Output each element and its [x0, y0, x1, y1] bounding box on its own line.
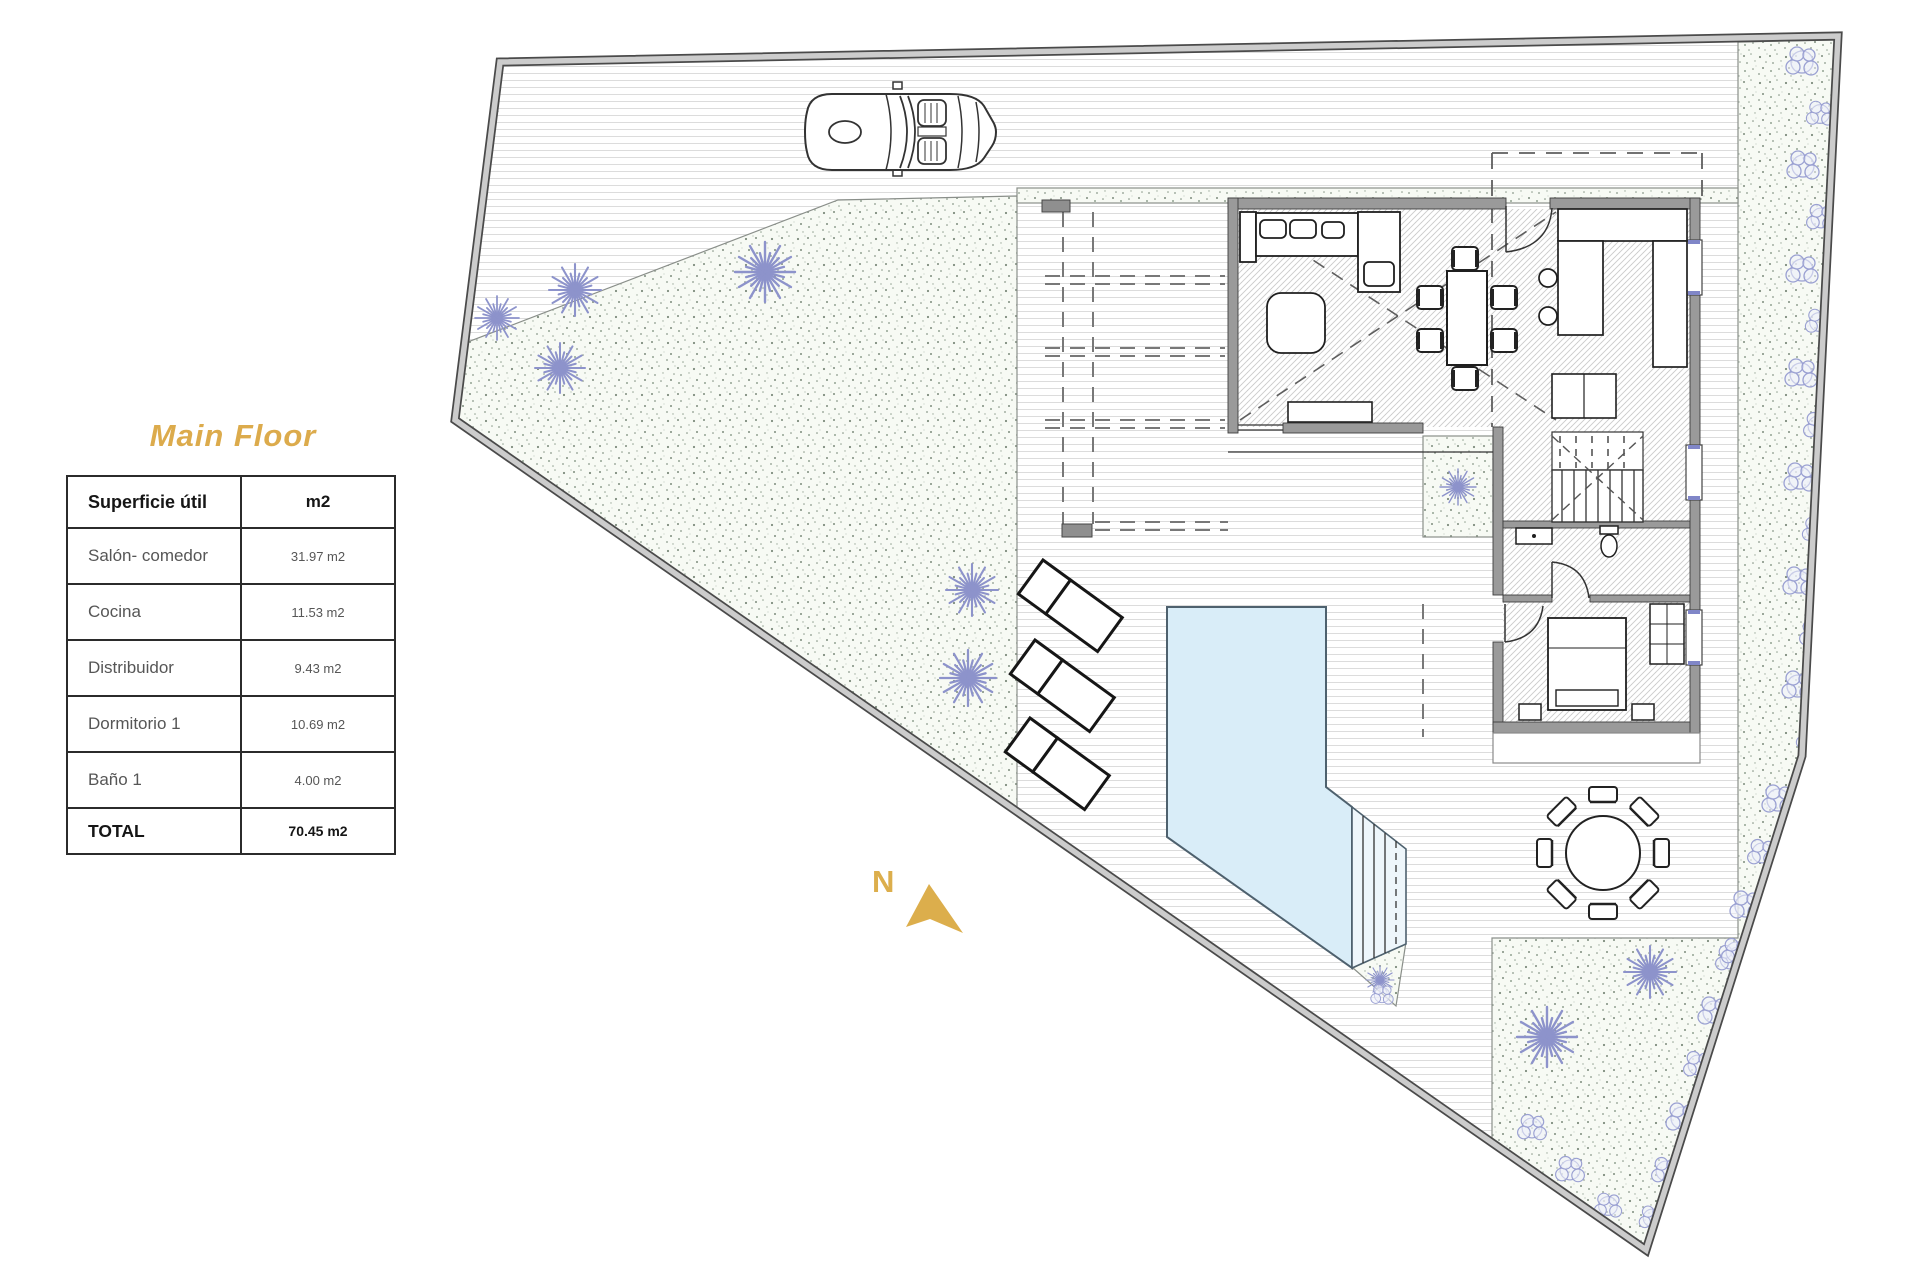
room-area: 11.53 m2	[242, 585, 394, 639]
table-header-row: Superficie útil m2	[68, 477, 394, 529]
floor-plan-page: Main Floor Superficie útil m2 Salón- com…	[0, 0, 1920, 1280]
tv-bench-icon	[1288, 402, 1372, 422]
area-table: Superficie útil m2 Salón- comedor 31.97 …	[66, 475, 396, 855]
room-area: 31.97 m2	[242, 529, 394, 583]
total-area: 70.45 m2	[242, 809, 394, 853]
table-row: Distribuidor 9.43 m2	[68, 641, 394, 697]
room-label: Dormitorio 1	[68, 697, 242, 751]
bed-icon	[1548, 618, 1626, 710]
stool-icon	[1539, 307, 1557, 325]
nightstand-icon	[1519, 704, 1541, 720]
stool-icon	[1539, 269, 1557, 287]
toilet-icon	[1600, 526, 1618, 557]
room-label: Salón- comedor	[68, 529, 242, 583]
wardrobe-icon	[1650, 604, 1684, 664]
north-arrow-icon	[906, 884, 963, 933]
table-header-label: Superficie útil	[68, 477, 242, 527]
room-label: Baño 1	[68, 753, 242, 807]
table-row: Dormitorio 1 10.69 m2	[68, 697, 394, 753]
table-total-row: TOTAL 70.45 m2	[68, 809, 394, 853]
nightstand-icon	[1632, 704, 1654, 720]
sideboard-icon	[1552, 374, 1616, 418]
table-row: Cocina 11.53 m2	[68, 585, 394, 641]
room-area: 10.69 m2	[242, 697, 394, 751]
table-header-unit: m2	[242, 477, 394, 527]
coffee-table-icon	[1267, 293, 1325, 353]
car-icon	[805, 82, 996, 176]
compass-label: N	[872, 864, 894, 900]
stairs-icon	[1552, 432, 1643, 522]
table-row: Salón- comedor 31.97 m2	[68, 529, 394, 585]
sink-icon	[1516, 528, 1552, 544]
table-row: Baño 1 4.00 m2	[68, 753, 394, 809]
pergola-post	[1042, 200, 1070, 212]
room-area: 9.43 m2	[242, 641, 394, 695]
deck-step	[1493, 733, 1700, 763]
pergola-post	[1062, 524, 1092, 537]
room-area: 4.00 m2	[242, 753, 394, 807]
room-label: Distribuidor	[68, 641, 242, 695]
total-label: TOTAL	[68, 809, 242, 853]
page-title: Main Floor	[128, 418, 338, 454]
room-label: Cocina	[68, 585, 242, 639]
